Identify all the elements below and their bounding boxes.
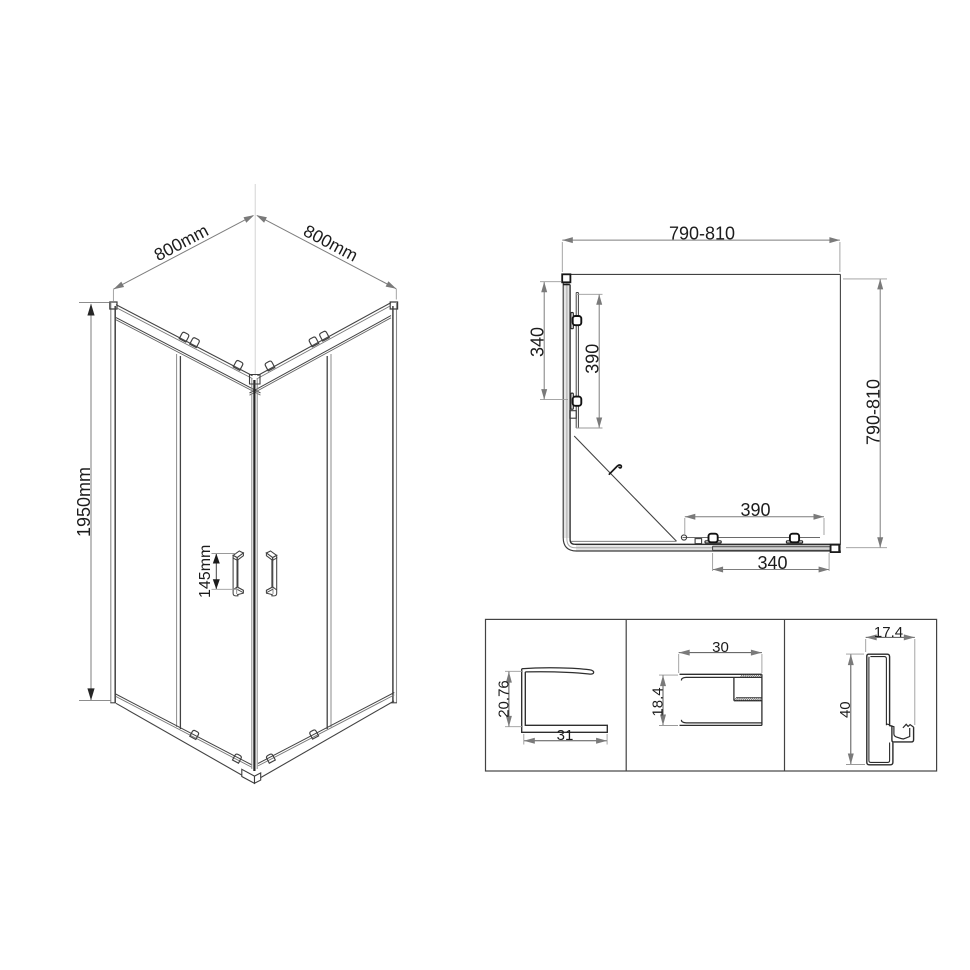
svg-text:30: 30 [712,639,729,656]
svg-text:145mm: 145mm [197,545,214,598]
svg-text:790-810: 790-810 [669,224,735,244]
svg-text:390: 390 [740,500,770,520]
svg-text:31: 31 [557,727,574,744]
svg-text:800mm: 800mm [151,220,212,265]
svg-text:390: 390 [583,344,603,374]
svg-text:340: 340 [757,553,787,573]
svg-text:1950mm: 1950mm [74,467,94,537]
svg-text:18.4: 18.4 [649,687,666,716]
svg-text:800mm: 800mm [300,221,361,266]
svg-text:40: 40 [837,701,854,718]
svg-text:20.76: 20.76 [495,680,512,718]
svg-text:340: 340 [528,327,548,357]
svg-text:17.4: 17.4 [874,624,903,641]
svg-text:790-810: 790-810 [864,379,884,445]
